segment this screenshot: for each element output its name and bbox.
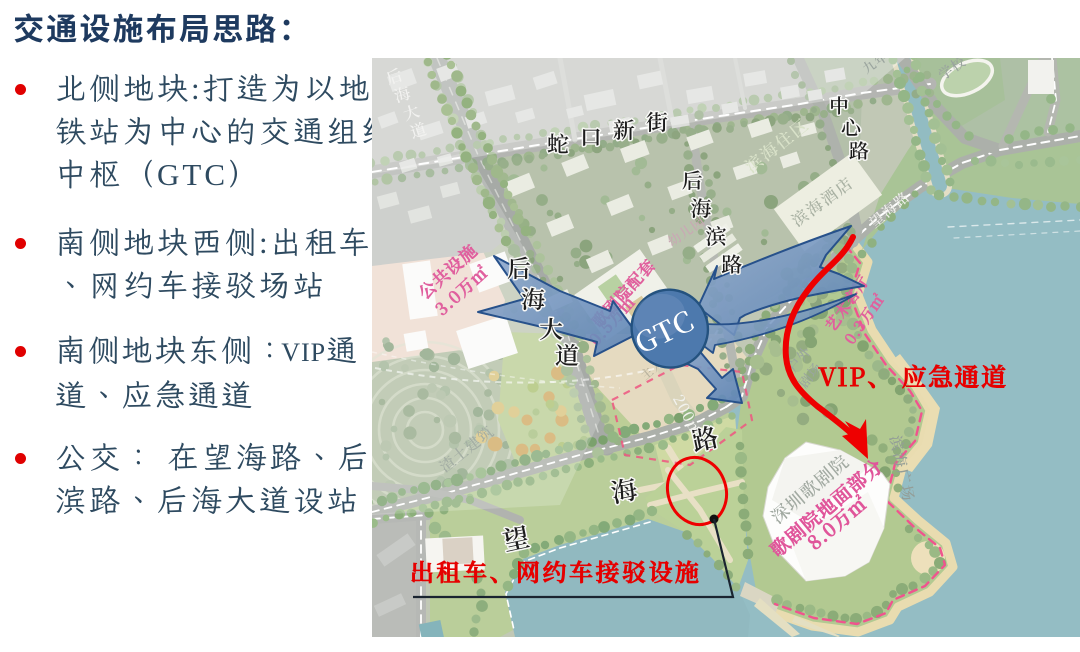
svg-text:街: 街 xyxy=(646,106,668,137)
svg-text:新: 新 xyxy=(613,114,635,145)
svg-text:道: 道 xyxy=(555,336,579,371)
svg-text:后: 后 xyxy=(507,249,531,284)
svg-text:滨: 滨 xyxy=(706,221,727,251)
svg-text:后: 后 xyxy=(682,165,703,195)
svg-text:路: 路 xyxy=(722,249,743,279)
svg-text:出租车、网约车接驳设施: 出租车、网约车接驳设施 xyxy=(410,553,702,588)
svg-text:蛇: 蛇 xyxy=(547,128,569,159)
svg-text:VIP、 应急通道: VIP、 应急通道 xyxy=(817,358,1008,394)
svg-text:路: 路 xyxy=(849,135,869,164)
svg-text:海: 海 xyxy=(691,193,712,223)
svg-text:口: 口 xyxy=(580,121,602,152)
